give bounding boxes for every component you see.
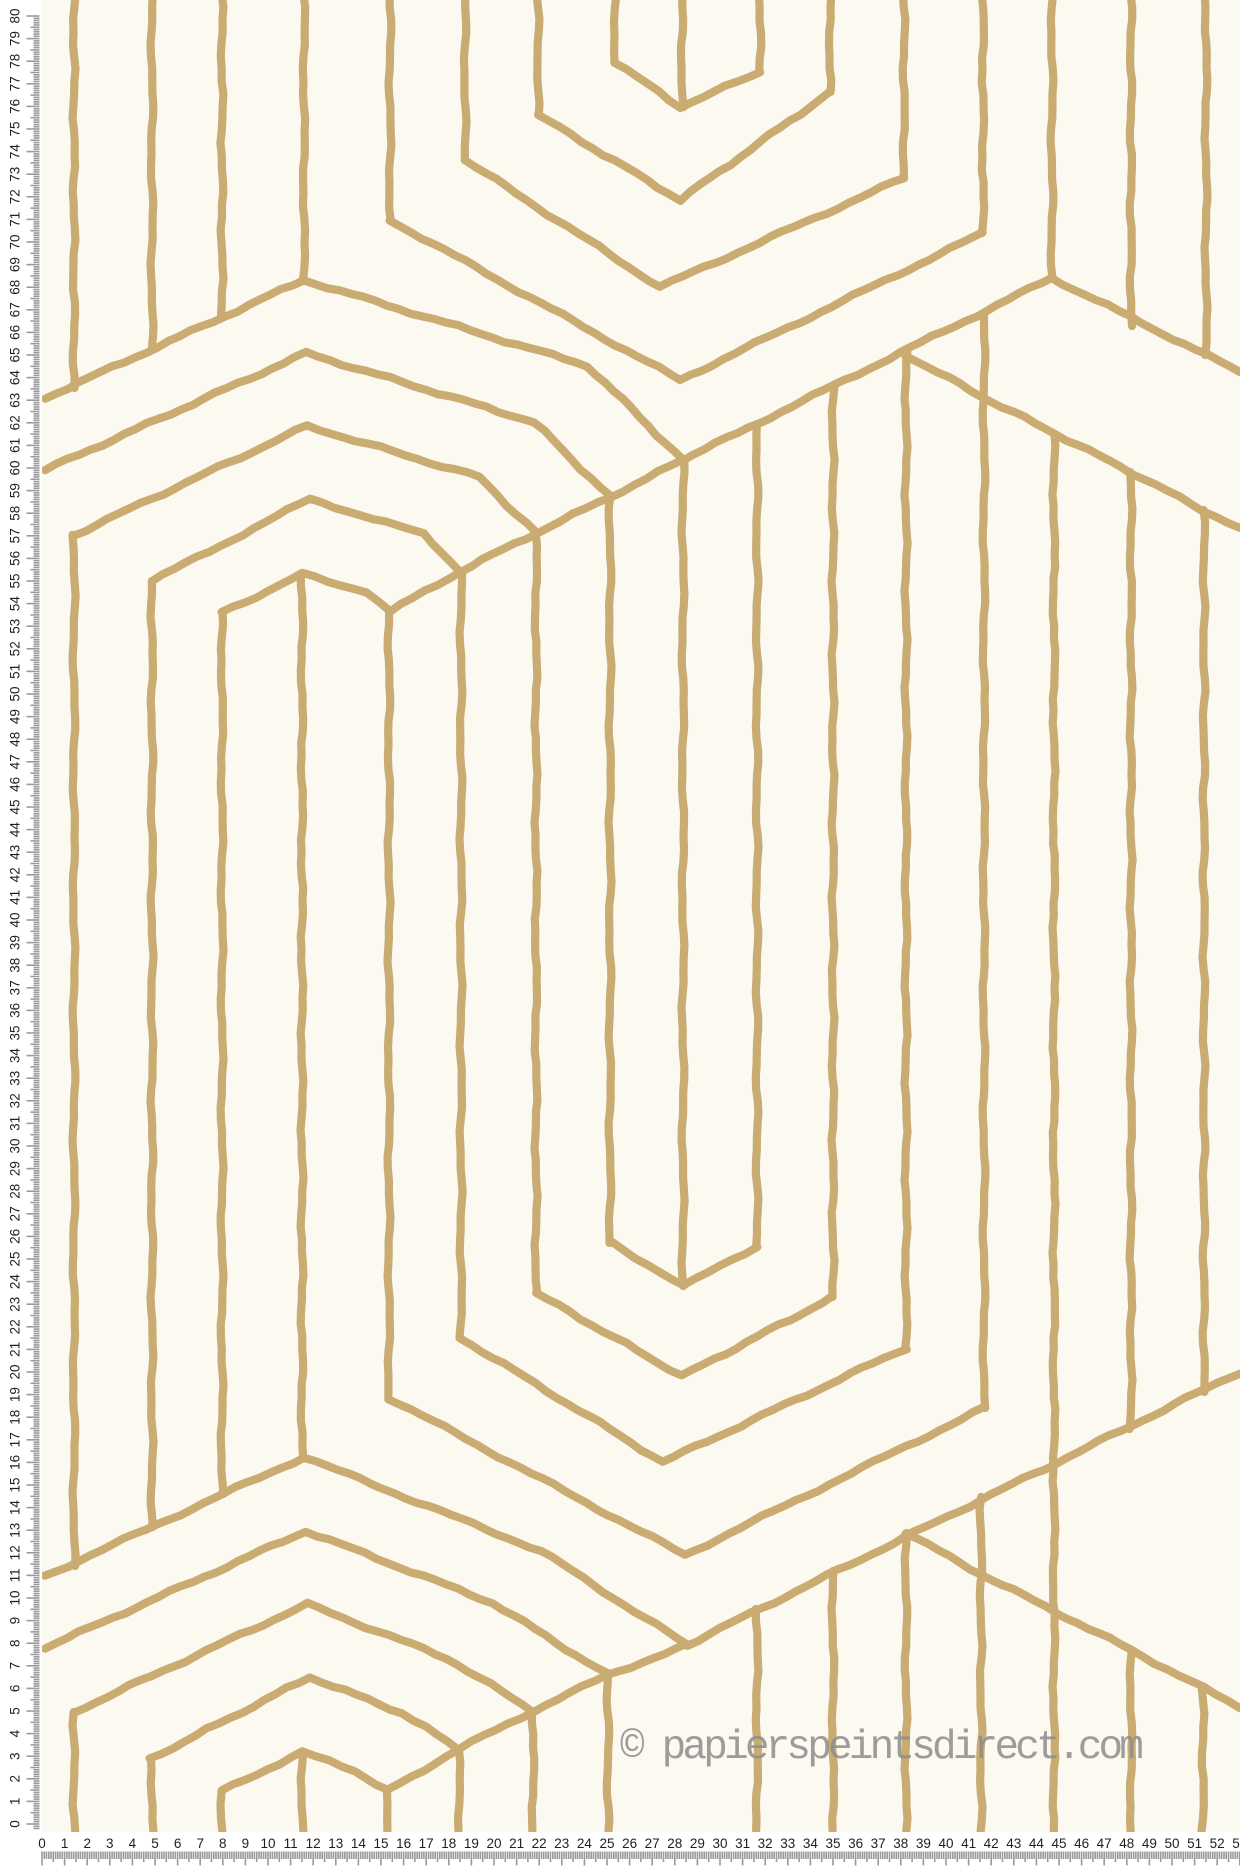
- svg-text:33: 33: [8, 1071, 23, 1086]
- svg-text:15: 15: [8, 1477, 23, 1492]
- svg-text:52: 52: [8, 641, 23, 656]
- svg-text:68: 68: [8, 280, 23, 295]
- svg-text:22: 22: [532, 1836, 547, 1851]
- svg-text:26: 26: [622, 1836, 637, 1851]
- svg-text:71: 71: [8, 212, 23, 227]
- svg-text:69: 69: [8, 257, 23, 272]
- svg-text:45: 45: [8, 799, 23, 814]
- svg-text:53: 53: [8, 619, 23, 634]
- svg-text:23: 23: [554, 1836, 569, 1851]
- svg-text:36: 36: [848, 1836, 863, 1851]
- svg-text:34: 34: [803, 1836, 819, 1851]
- svg-text:74: 74: [8, 144, 23, 160]
- svg-text:11: 11: [8, 1568, 23, 1582]
- svg-text:79: 79: [8, 31, 23, 46]
- svg-text:31: 31: [8, 1116, 23, 1131]
- svg-text:11: 11: [284, 1836, 298, 1851]
- svg-text:34: 34: [8, 1048, 23, 1064]
- svg-text:10: 10: [8, 1590, 23, 1605]
- svg-text:8: 8: [8, 1639, 23, 1647]
- svg-text:60: 60: [8, 460, 23, 475]
- svg-text:© papierspeintsdirect.com: © papierspeintsdirect.com: [620, 1725, 1142, 1771]
- svg-text:54: 54: [8, 596, 23, 612]
- svg-text:6: 6: [174, 1836, 182, 1851]
- svg-text:32: 32: [758, 1836, 773, 1851]
- svg-text:16: 16: [396, 1836, 411, 1851]
- svg-text:7: 7: [196, 1836, 204, 1851]
- svg-text:47: 47: [1097, 1836, 1112, 1851]
- svg-text:49: 49: [1142, 1836, 1157, 1851]
- svg-text:66: 66: [8, 325, 23, 340]
- svg-text:44: 44: [8, 822, 23, 838]
- svg-text:12: 12: [306, 1836, 321, 1851]
- svg-text:2: 2: [8, 1775, 23, 1783]
- svg-text:35: 35: [8, 1025, 23, 1040]
- svg-text:37: 37: [871, 1836, 886, 1851]
- svg-text:1: 1: [8, 1798, 23, 1806]
- svg-text:40: 40: [8, 912, 23, 927]
- svg-text:30: 30: [712, 1836, 727, 1851]
- svg-text:13: 13: [328, 1836, 343, 1851]
- svg-text:3: 3: [106, 1836, 114, 1851]
- svg-text:76: 76: [8, 99, 23, 114]
- svg-text:7: 7: [8, 1662, 23, 1670]
- svg-text:80: 80: [8, 8, 23, 23]
- svg-text:20: 20: [8, 1364, 23, 1379]
- svg-text:49: 49: [8, 709, 23, 724]
- svg-text:17: 17: [8, 1432, 23, 1447]
- svg-text:20: 20: [486, 1836, 501, 1851]
- svg-text:72: 72: [8, 189, 23, 204]
- svg-text:67: 67: [8, 302, 23, 317]
- svg-text:38: 38: [8, 958, 23, 973]
- svg-text:6: 6: [8, 1685, 23, 1693]
- svg-text:24: 24: [577, 1836, 593, 1851]
- svg-text:65: 65: [8, 347, 23, 362]
- svg-text:51: 51: [8, 664, 23, 679]
- svg-text:33: 33: [780, 1836, 795, 1851]
- svg-text:18: 18: [441, 1836, 456, 1851]
- svg-text:39: 39: [916, 1836, 931, 1851]
- svg-text:43: 43: [1006, 1836, 1021, 1851]
- svg-text:70: 70: [8, 234, 23, 249]
- svg-text:43: 43: [8, 845, 23, 860]
- svg-text:42: 42: [984, 1836, 999, 1851]
- svg-text:12: 12: [8, 1545, 23, 1560]
- svg-text:14: 14: [351, 1836, 367, 1851]
- svg-text:51: 51: [1187, 1836, 1202, 1851]
- svg-text:58: 58: [8, 506, 23, 521]
- svg-text:31: 31: [735, 1836, 750, 1851]
- svg-text:56: 56: [8, 551, 23, 566]
- svg-text:2: 2: [83, 1836, 91, 1851]
- svg-text:0: 0: [38, 1836, 46, 1851]
- svg-text:8: 8: [219, 1836, 227, 1851]
- svg-text:37: 37: [8, 980, 23, 995]
- svg-text:4: 4: [129, 1836, 137, 1851]
- svg-text:62: 62: [8, 415, 23, 430]
- svg-text:50: 50: [8, 686, 23, 701]
- svg-text:61: 61: [8, 438, 23, 453]
- svg-text:46: 46: [1074, 1836, 1089, 1851]
- svg-text:9: 9: [8, 1617, 23, 1625]
- svg-text:77: 77: [8, 76, 23, 91]
- svg-text:13: 13: [8, 1523, 23, 1538]
- svg-text:16: 16: [8, 1455, 23, 1470]
- svg-text:3: 3: [8, 1752, 23, 1760]
- svg-text:75: 75: [8, 121, 23, 136]
- svg-text:48: 48: [8, 732, 23, 747]
- svg-text:41: 41: [961, 1836, 976, 1851]
- svg-text:10: 10: [260, 1836, 275, 1851]
- svg-text:41: 41: [8, 890, 23, 905]
- svg-text:24: 24: [8, 1274, 23, 1290]
- svg-text:5: 5: [151, 1836, 159, 1851]
- svg-text:15: 15: [373, 1836, 388, 1851]
- svg-text:52: 52: [1210, 1836, 1225, 1851]
- svg-text:55: 55: [8, 573, 23, 588]
- svg-text:63: 63: [8, 393, 23, 408]
- svg-text:28: 28: [667, 1836, 682, 1851]
- svg-text:14: 14: [8, 1500, 23, 1516]
- svg-text:38: 38: [893, 1836, 908, 1851]
- svg-text:53: 53: [1232, 1836, 1240, 1851]
- svg-text:39: 39: [8, 935, 23, 950]
- svg-text:40: 40: [938, 1836, 953, 1851]
- svg-text:27: 27: [645, 1836, 660, 1851]
- svg-text:21: 21: [8, 1342, 23, 1357]
- svg-text:46: 46: [8, 777, 23, 792]
- svg-text:4: 4: [8, 1729, 23, 1737]
- svg-text:25: 25: [599, 1836, 614, 1851]
- svg-text:45: 45: [1051, 1836, 1066, 1851]
- svg-text:23: 23: [8, 1297, 23, 1312]
- svg-text:26: 26: [8, 1229, 23, 1244]
- svg-text:29: 29: [8, 1161, 23, 1176]
- svg-text:29: 29: [690, 1836, 705, 1851]
- svg-text:27: 27: [8, 1206, 23, 1221]
- svg-text:64: 64: [8, 370, 23, 386]
- svg-text:44: 44: [1029, 1836, 1045, 1851]
- svg-text:47: 47: [8, 754, 23, 769]
- svg-text:9: 9: [242, 1836, 250, 1851]
- svg-text:17: 17: [419, 1836, 434, 1851]
- svg-text:28: 28: [8, 1184, 23, 1199]
- svg-text:1: 1: [61, 1836, 69, 1851]
- svg-text:19: 19: [8, 1387, 23, 1402]
- svg-text:19: 19: [464, 1836, 479, 1851]
- svg-text:0: 0: [8, 1820, 23, 1828]
- svg-text:57: 57: [8, 528, 23, 543]
- svg-text:18: 18: [8, 1410, 23, 1425]
- svg-text:30: 30: [8, 1138, 23, 1153]
- svg-text:21: 21: [509, 1836, 524, 1851]
- svg-text:36: 36: [8, 1003, 23, 1018]
- svg-text:48: 48: [1119, 1836, 1134, 1851]
- svg-text:35: 35: [825, 1836, 840, 1851]
- svg-text:25: 25: [8, 1251, 23, 1266]
- svg-text:5: 5: [8, 1707, 23, 1715]
- svg-text:42: 42: [8, 867, 23, 882]
- svg-text:32: 32: [8, 1093, 23, 1108]
- svg-text:59: 59: [8, 483, 23, 498]
- svg-text:78: 78: [8, 54, 23, 69]
- svg-text:50: 50: [1164, 1836, 1179, 1851]
- svg-text:73: 73: [8, 167, 23, 182]
- svg-text:22: 22: [8, 1319, 23, 1334]
